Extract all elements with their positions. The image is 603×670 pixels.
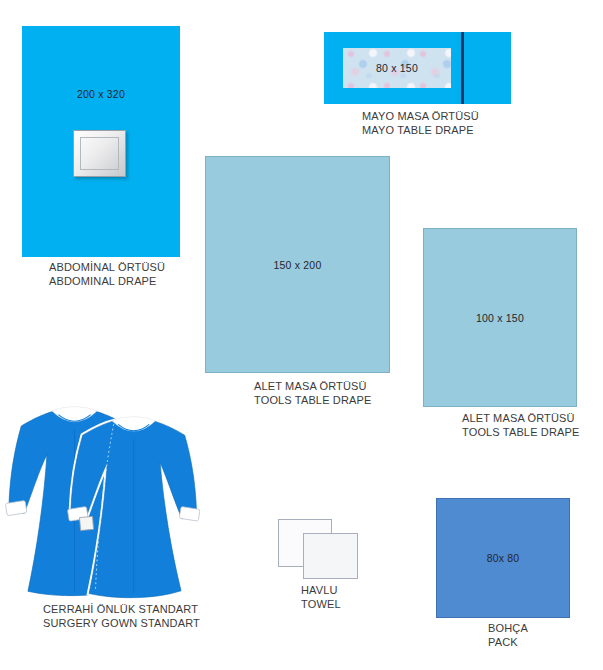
towel-caption-tr: HAVLU — [301, 584, 341, 598]
gown-caption-en: SURGERY GOWN STANDART — [43, 617, 200, 631]
pack-caption-tr: BOHÇA — [488, 622, 528, 636]
tools-large-caption-en: TOOLS TABLE DRAPE — [254, 394, 371, 408]
tools-table-drape-small-size: 100 x 150 — [476, 312, 524, 324]
tools-table-drape-large-caption: ALET MASA ÖRTÜSÜ TOOLS TABLE DRAPE — [254, 380, 371, 407]
tools-small-caption-en: TOOLS TABLE DRAPE — [462, 426, 579, 440]
abdominal-drape-caption: ABDOMİNAL ÖRTÜSÜ ABDOMINAL DRAPE — [49, 261, 165, 288]
abdominal-drape-fenestration — [73, 130, 126, 177]
towel-front-graphic — [303, 533, 358, 579]
mayo-drape-fold-line — [461, 32, 464, 104]
mayo-table-drape-graphic: 80 x 150 — [324, 32, 511, 104]
tools-table-drape-small-caption: ALET MASA ÖRTÜSÜ TOOLS TABLE DRAPE — [462, 412, 579, 439]
tools-small-caption-tr: ALET MASA ÖRTÜSÜ — [462, 412, 579, 426]
mayo-drape-reinforced-panel: 80 x 150 — [343, 48, 451, 88]
mayo-drape-caption-tr: MAYO MASA ÖRTÜSÜ — [362, 110, 479, 124]
pack-wrap-graphic: 80x 80 — [436, 498, 570, 618]
mayo-drape-caption: MAYO MASA ÖRTÜSÜ MAYO TABLE DRAPE — [362, 110, 479, 137]
abdominal-drape-caption-tr: ABDOMİNAL ÖRTÜSÜ — [49, 261, 165, 275]
abdominal-drape-caption-en: ABDOMINAL DRAPE — [49, 275, 165, 289]
surgery-gowns-illustration — [4, 403, 204, 605]
gown-caption-tr: CERRAHİ ÖNLÜK STANDART — [43, 603, 200, 617]
tools-table-drape-large-graphic: 150 x 200 — [205, 156, 390, 373]
surgery-gown-caption: CERRAHİ ÖNLÜK STANDART SURGERY GOWN STAN… — [43, 603, 200, 630]
mayo-drape-caption-en: MAYO TABLE DRAPE — [362, 124, 479, 138]
pack-caption: BOHÇA PACK — [488, 622, 528, 649]
towel-caption: HAVLU TOWEL — [301, 584, 341, 611]
fenestration-inner-border — [80, 137, 119, 170]
abdominal-drape-size: 200 x 320 — [22, 88, 180, 100]
surgical-pack-contents-diagram: 200 x 320 ABDOMİNAL ÖRTÜSÜ ABDOMINAL DRA… — [0, 0, 603, 670]
tools-table-drape-small-graphic: 100 x 150 — [423, 228, 577, 407]
towel-caption-en: TOWEL — [301, 598, 341, 612]
tools-table-drape-large-size: 150 x 200 — [274, 259, 322, 271]
tools-large-caption-tr: ALET MASA ÖRTÜSÜ — [254, 380, 371, 394]
mayo-drape-size: 80 x 150 — [376, 62, 418, 74]
abdominal-drape-graphic: 200 x 320 — [22, 26, 180, 257]
pack-size: 80x 80 — [487, 552, 520, 564]
gown-belt-tag — [79, 516, 93, 530]
pack-caption-en: PACK — [488, 636, 528, 650]
